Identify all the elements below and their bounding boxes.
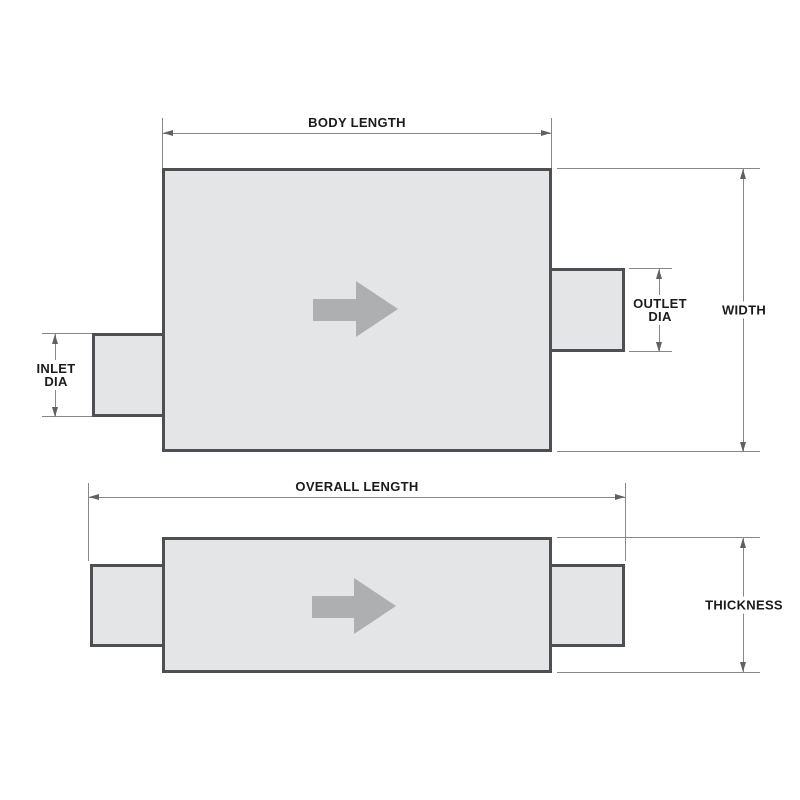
flow-arrow-shaft: [312, 596, 360, 618]
outlet-pipe: [547, 268, 625, 352]
inlet-pipe: [92, 333, 167, 417]
arrowhead-down-icon: [740, 442, 746, 452]
outlet-dia-label: OUTLET DIA: [630, 295, 690, 325]
extension-line: [557, 168, 760, 169]
flow-arrow-head: [354, 578, 396, 634]
outlet-pipe-side: [547, 564, 625, 647]
extension-line: [625, 483, 626, 561]
arrowhead-right-icon: [615, 494, 625, 500]
extension-line: [42, 333, 92, 334]
extension-line: [42, 416, 92, 417]
extension-line: [629, 351, 672, 352]
extension-line: [557, 451, 760, 452]
arrowhead-up-icon: [740, 538, 746, 548]
arrowhead-down-icon: [52, 407, 58, 417]
extension-line: [557, 537, 760, 538]
flow-arrow-head: [356, 281, 398, 337]
muffler-dimension-diagram: BODY LENGTH WIDTH OUTLET DIA: [0, 0, 800, 800]
arrowhead-left-icon: [89, 494, 99, 500]
width-label: WIDTH: [719, 302, 769, 319]
extension-line: [557, 672, 760, 673]
inlet-dia-label: INLET DIA: [33, 360, 78, 390]
arrowhead-down-icon: [656, 342, 662, 352]
outlet-dia-line2: DIA: [648, 309, 671, 324]
arrowhead-right-icon: [541, 130, 551, 136]
overall-length-label: OVERALL LENGTH: [295, 480, 418, 493]
thickness-label: THICKNESS: [702, 597, 786, 614]
body-length-label: BODY LENGTH: [308, 116, 406, 129]
inlet-pipe-side: [90, 564, 165, 647]
extension-line: [551, 118, 552, 168]
dimension-line: [89, 497, 625, 498]
arrowhead-up-icon: [656, 269, 662, 279]
dimension-line: [163, 133, 551, 134]
arrowhead-up-icon: [52, 334, 58, 344]
extension-line: [629, 268, 672, 269]
extension-line: [162, 118, 163, 168]
arrowhead-up-icon: [740, 169, 746, 179]
inlet-dia-line2: DIA: [44, 374, 67, 389]
arrowhead-down-icon: [740, 662, 746, 672]
arrowhead-left-icon: [163, 130, 173, 136]
